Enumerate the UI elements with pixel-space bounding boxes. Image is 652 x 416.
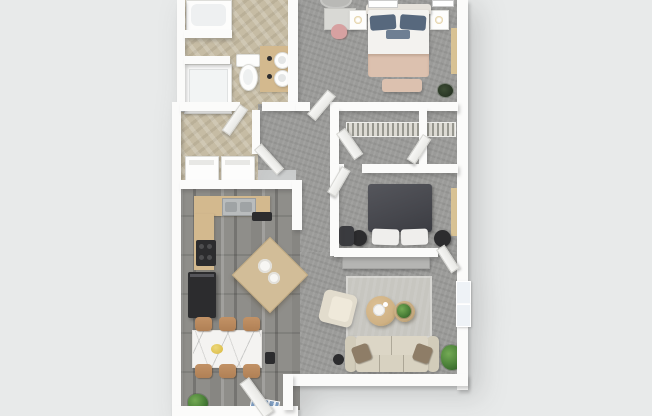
wall-exterior-bottom-dining [172,406,298,416]
wall-exterior-left-top [177,0,185,110]
white-pillow-right [401,229,429,246]
yellow-bowl [211,344,223,354]
wall-exterior-bottom-living [288,374,468,386]
wall-bedroom2-north-b [362,164,458,173]
dishwasher-front [252,212,272,221]
primary-bed [366,4,431,77]
island-plate-2 [268,272,280,284]
bathtub-basin [191,4,226,26]
lumbar-pillow [386,30,410,39]
dining-chair-4 [195,364,212,378]
sink-basin-right [240,202,252,212]
wall-closet-west [330,108,339,170]
wall-bath-south-b [262,102,298,111]
faucet-2 [267,74,272,79]
wall-bedroom2-south [334,248,438,257]
white-pillow-left [372,229,400,246]
dining-table [192,330,262,368]
sink-basin-2 [278,74,286,82]
open-window-panel-2 [456,304,471,327]
sink-basin-left [225,202,237,212]
media-console [342,256,430,269]
floor-lamp [333,354,344,365]
charcoal-duvet [368,184,432,232]
coffee-table-plant [397,304,411,318]
coffee-table-cup [383,302,388,307]
wire-shelf-closet-a [346,122,420,137]
cooktop [196,240,216,266]
corner-plant-dark [438,84,453,97]
washer-panel [189,160,214,165]
kitchen-sink [222,198,256,216]
armchair-cushion [327,295,353,322]
apartment-building [0,0,652,416]
burner-2 [207,244,212,249]
burner-1 [199,244,204,249]
blush-blanket [368,54,429,77]
refrigerator-top [190,274,214,277]
wall-kitchen-north [180,180,300,189]
wall-entry-stub [283,374,293,410]
wall-primary-south-a [296,102,310,111]
sofa [345,334,439,376]
ceiling-vent-1 [368,0,398,8]
faucet-1 [267,56,272,61]
wall-exterior-left [172,102,181,416]
dining-chair-6 [243,364,260,378]
wall-kitchen-east [292,180,302,230]
coffee-table-small [394,301,415,322]
toilet-seat [243,69,253,85]
wall-tub-enclosure [184,30,232,38]
navy-pillow-left [370,14,397,31]
wire-shelf-closet-b [426,122,456,137]
burner-3 [199,255,204,260]
desk-chair [331,24,347,39]
dryer-panel [225,160,250,165]
dining-chair-2 [219,317,236,331]
coffee-table-large [366,296,396,326]
wall-bath-south-a [180,102,240,111]
sink-basin-1 [278,56,286,64]
wall-shower-enclosure [184,56,230,64]
wall-exterior-right [457,0,468,390]
nightstand-left [349,10,367,30]
lamp-right [435,16,443,24]
bathtub [186,0,232,32]
foot-bench [382,79,422,92]
dining-chair-3 [243,317,260,331]
ceiling-vent-2 [432,0,454,7]
refrigerator [188,272,216,318]
dining-chair-1 [195,317,212,331]
dining-chair-5 [219,364,236,378]
island-plate-1 [258,259,272,273]
bedroom-2-corner-chair [339,226,354,246]
nightstand-right [430,10,449,30]
toilet-bowl [239,64,258,91]
floorplan-render [0,0,652,416]
bed-2 [368,184,432,248]
burner-4 [207,255,212,260]
floor-item-dark [265,352,275,364]
navy-pillow-right [400,14,427,31]
wall-primary-south-b [330,102,458,111]
lamp-left [354,16,362,24]
open-window-panel-1 [456,281,471,304]
wall-bath-bedroom [288,0,298,108]
